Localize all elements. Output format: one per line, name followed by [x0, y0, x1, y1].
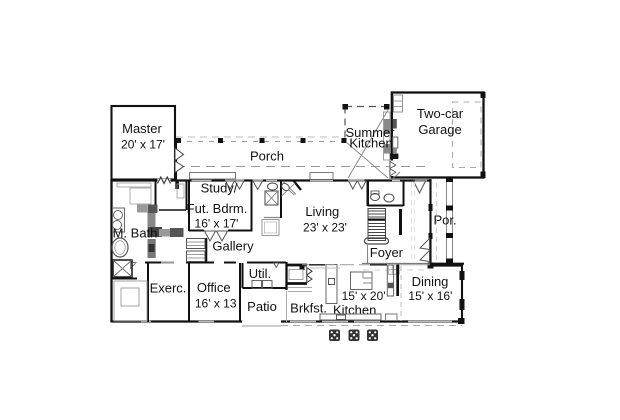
svg-text:Garage: Garage	[418, 122, 461, 137]
svg-text:Gallery: Gallery	[212, 239, 254, 254]
svg-text:Foyer: Foyer	[370, 245, 404, 260]
svg-text:20' x 17': 20' x 17'	[121, 138, 165, 152]
svg-text:15' x 16': 15' x 16'	[408, 289, 452, 303]
svg-text:Living: Living	[305, 204, 339, 219]
svg-text:Kitchen: Kitchen	[349, 136, 392, 151]
svg-text:Two-car: Two-car	[417, 106, 464, 121]
svg-text:Office: Office	[197, 280, 231, 295]
svg-text:Study/: Study/	[201, 181, 238, 196]
svg-text:Dining: Dining	[412, 274, 449, 289]
svg-text:Util.: Util.	[249, 266, 271, 281]
svg-text:16' x 13: 16' x 13	[195, 297, 237, 311]
svg-text:Exerc.: Exerc.	[150, 281, 187, 296]
svg-text:Fut. Bdrm.: Fut. Bdrm.	[187, 201, 248, 216]
svg-text:Brkfst.: Brkfst.	[290, 301, 327, 316]
svg-text:Master: Master	[122, 121, 162, 136]
svg-text:23' x 23': 23' x 23'	[303, 221, 347, 235]
svg-text:16' x 17': 16' x 17'	[195, 217, 239, 231]
svg-text:Patio: Patio	[247, 299, 277, 314]
svg-text:Porch: Porch	[250, 149, 284, 164]
svg-text:15' x 20': 15' x 20'	[342, 289, 386, 303]
